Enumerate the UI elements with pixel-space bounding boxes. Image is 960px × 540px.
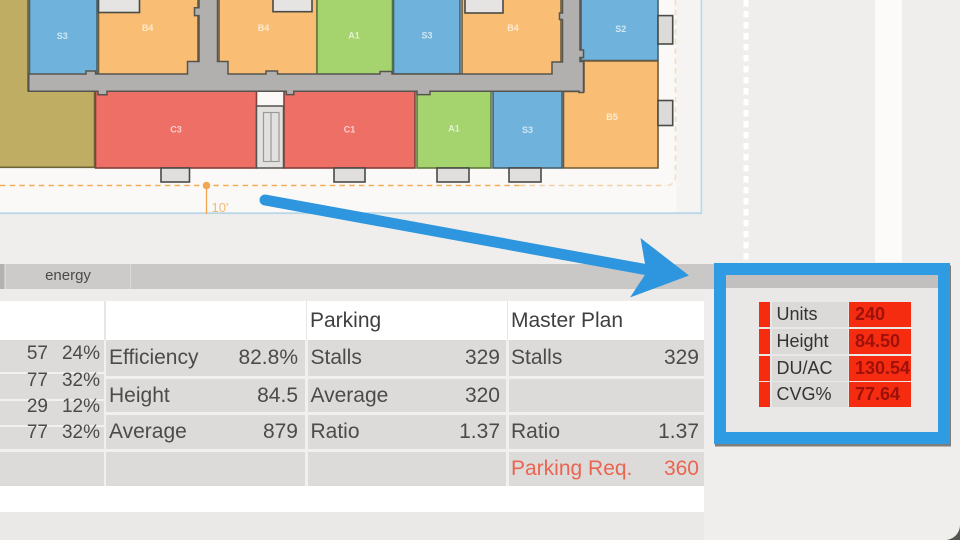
svg-text:S3: S3 [421, 31, 432, 41]
svg-text:S3: S3 [522, 125, 533, 135]
svg-text:C1: C1 [344, 125, 356, 135]
svg-text:A1: A1 [448, 124, 460, 134]
svg-text:B4: B4 [258, 23, 270, 33]
svg-text:B5: B5 [606, 112, 618, 122]
svg-text:S3: S3 [57, 31, 68, 41]
svg-text:A1: A1 [348, 31, 360, 41]
svg-text:S2: S2 [615, 24, 626, 34]
svg-text:B4: B4 [507, 23, 519, 33]
svg-text:B4: B4 [142, 23, 154, 33]
svg-text:C3: C3 [170, 125, 182, 135]
svg-text:10': 10' [212, 200, 229, 215]
